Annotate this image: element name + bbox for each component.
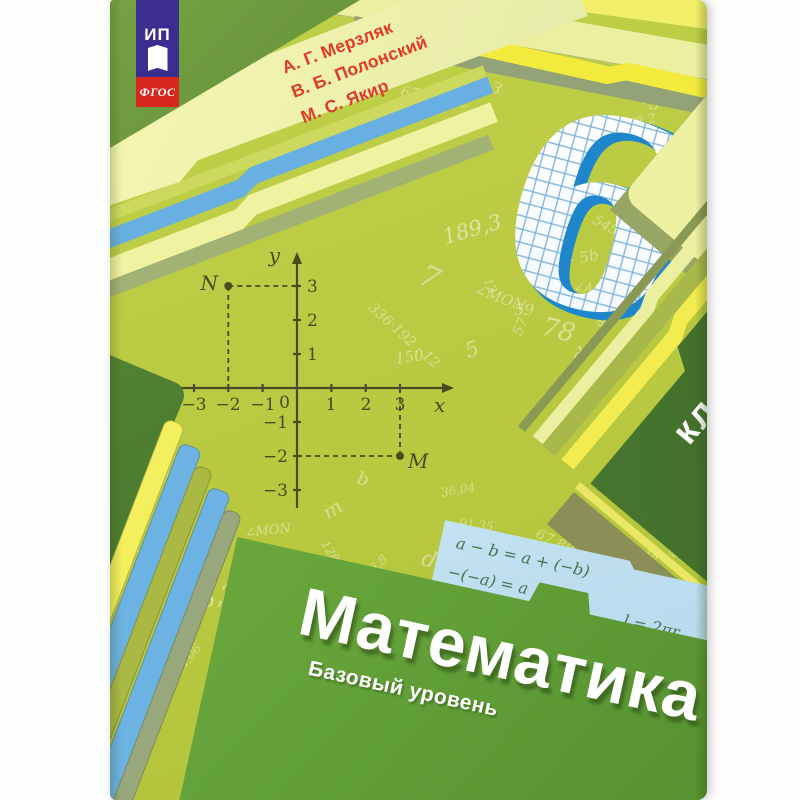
y-tick: 3 (307, 277, 318, 297)
y-axis-label: y (268, 243, 281, 267)
book-cover: 67,86acЗ175178,2545189,37∠MON3a + 5b∠ABC… (110, 0, 707, 800)
x-tick: −1 (250, 395, 275, 415)
x-axis-arrow (442, 383, 454, 393)
point-N-label: N (200, 271, 220, 295)
x-axis-label: x (434, 393, 445, 417)
y-tick: 1 (307, 345, 318, 365)
fgos-label: ФГОС (140, 85, 176, 100)
x-tick: −2 (215, 395, 240, 415)
y-tick: −3 (263, 481, 288, 501)
y-axis-arrow (292, 252, 302, 264)
x-tick: 1 (326, 395, 337, 415)
origin-label: 0 (279, 393, 290, 413)
x-tick: 2 (361, 395, 372, 415)
x-tick: −3 (181, 395, 206, 415)
book-icon (148, 45, 168, 71)
point-N-dot (224, 282, 232, 290)
y-tick: −1 (263, 413, 288, 433)
fgos-badge: ФГОС (136, 77, 179, 107)
publisher-logo: ИП (136, 0, 179, 77)
x-tick: 3 (395, 395, 406, 415)
y-tick: 2 (307, 311, 318, 331)
publisher-monogram: ИП (144, 26, 170, 43)
point-M-dot (396, 452, 404, 460)
point-M-label: M (407, 449, 429, 473)
photo-background: 67,86acЗ175178,2545189,37∠MON3a + 5b∠ABC… (0, 0, 800, 800)
y-tick: −2 (263, 447, 288, 467)
